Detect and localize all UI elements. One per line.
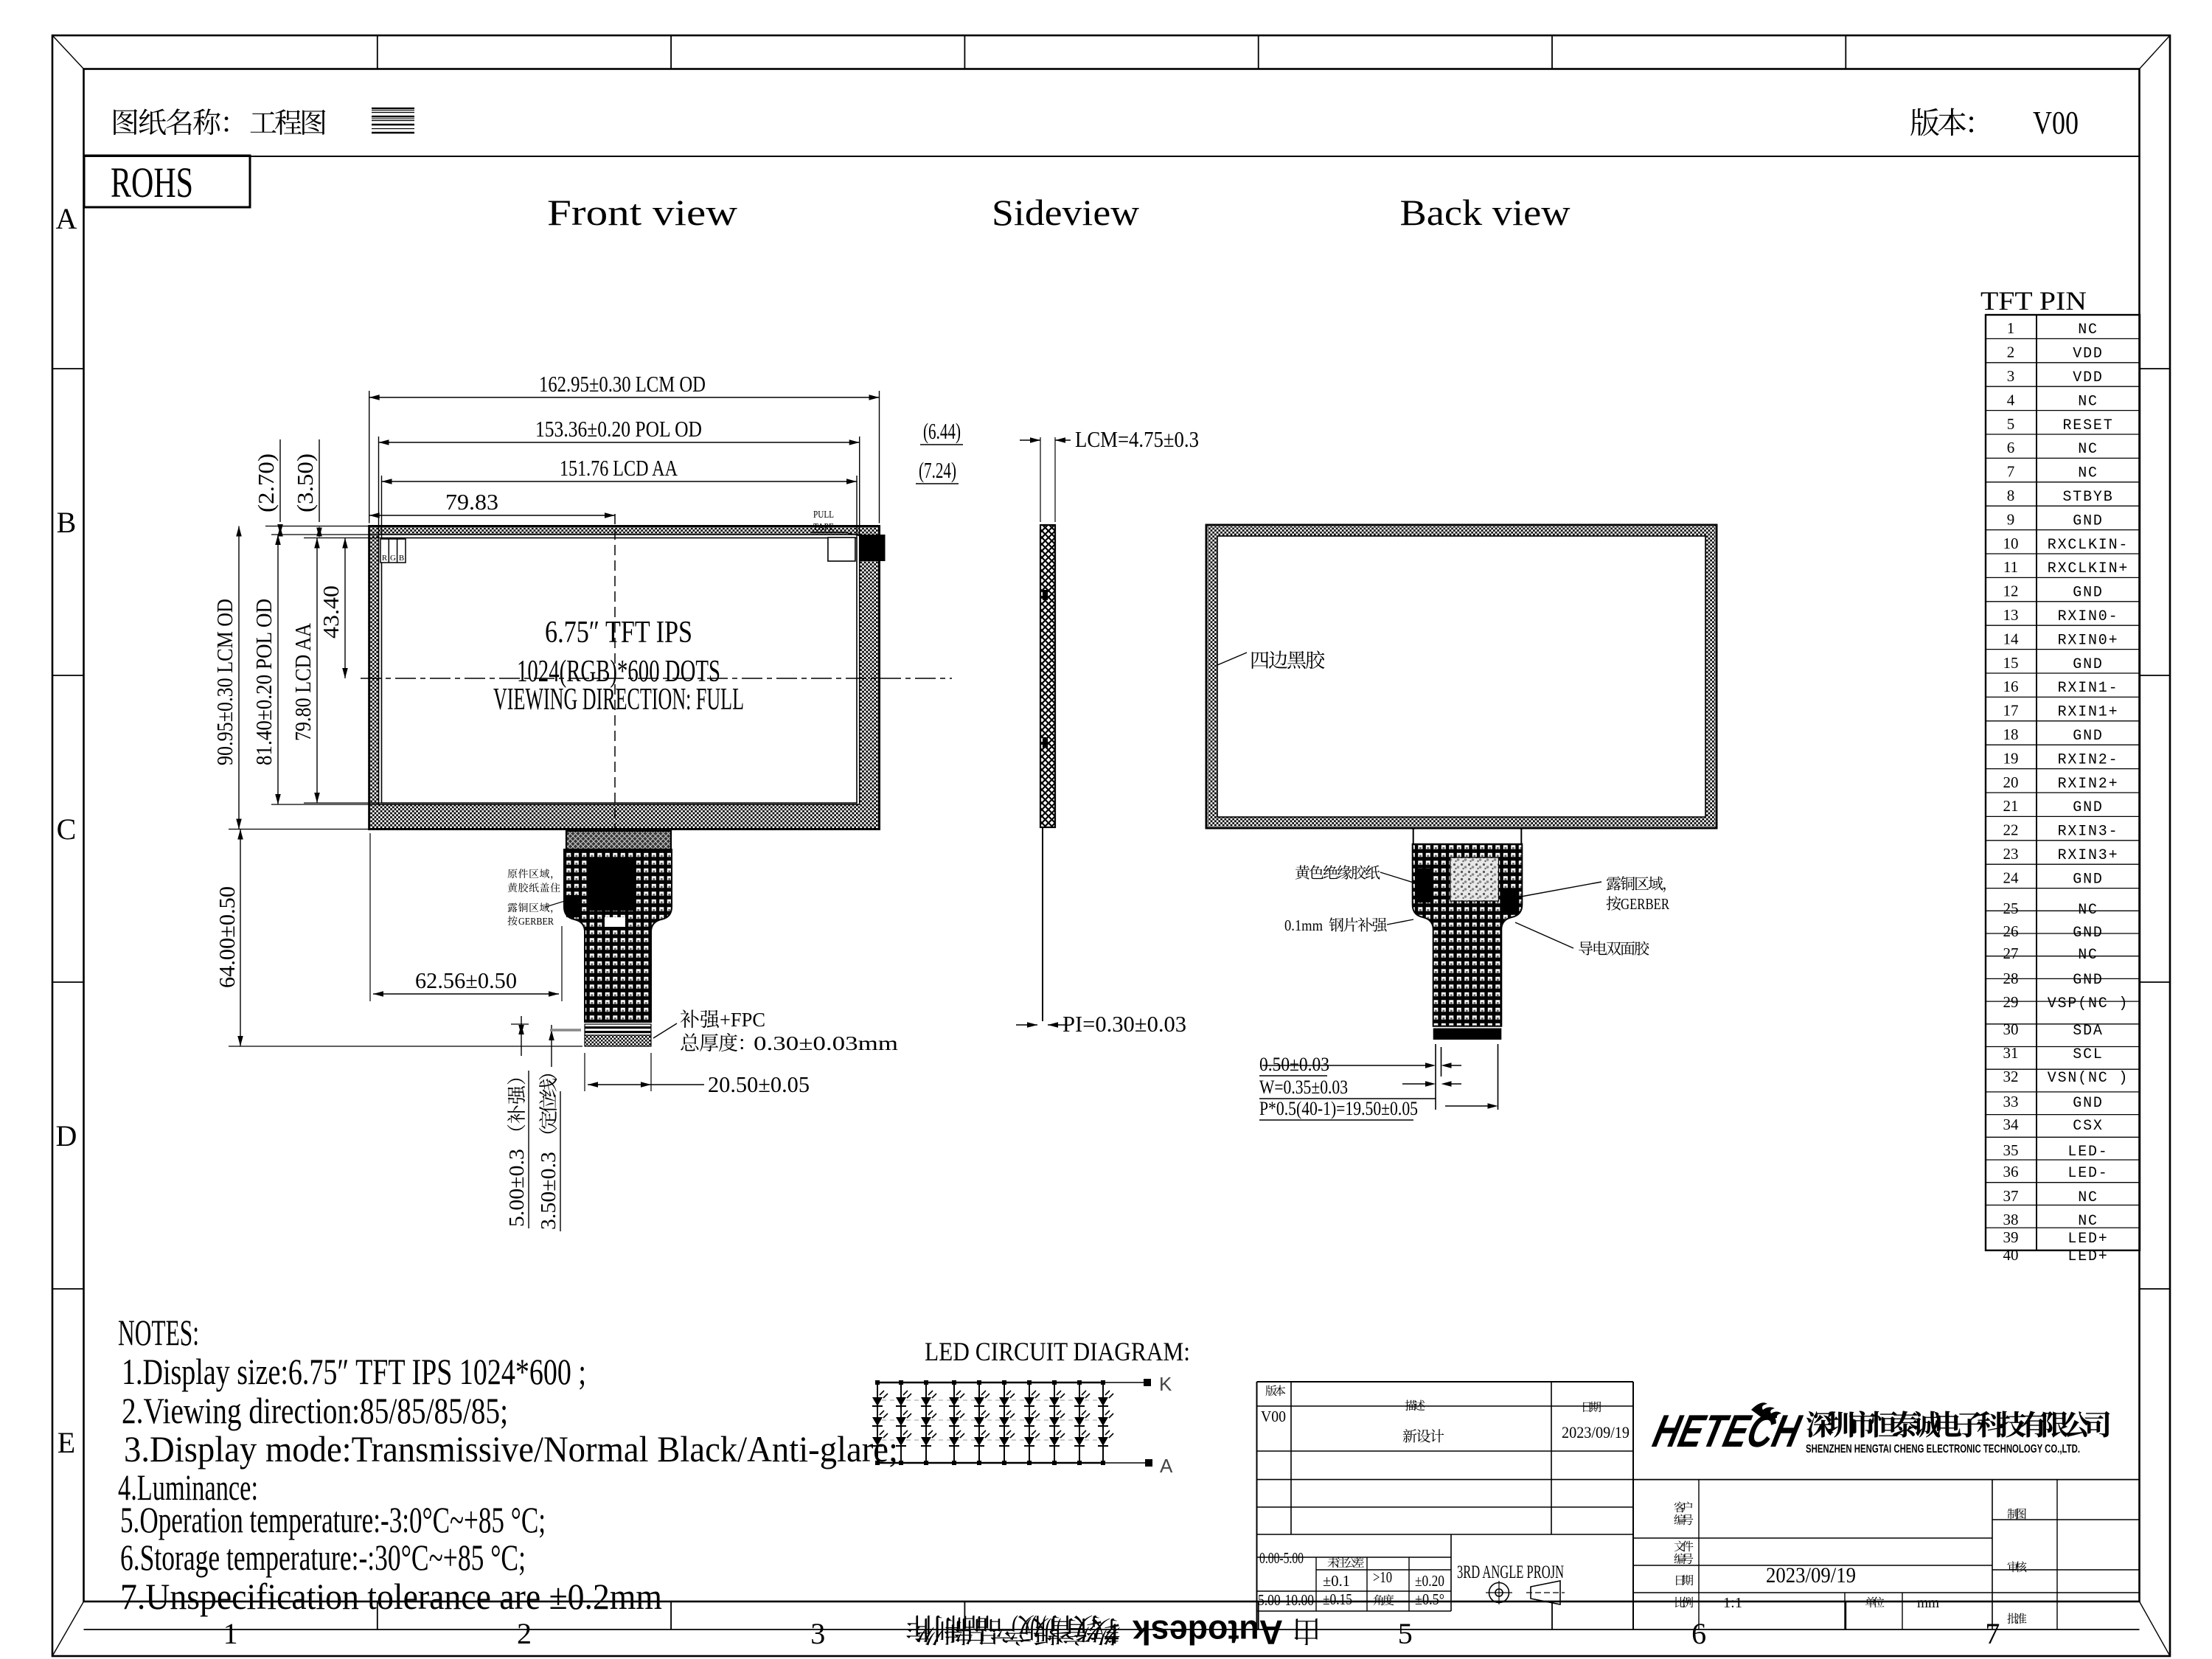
svg-text:20: 20 [2003,773,2019,791]
svg-text:GERBER: GERBER [1621,895,1669,913]
svg-text:40: 40 [2003,1246,2019,1264]
svg-text:NC: NC [2078,465,2098,482]
svg-text:RXIN2-: RXIN2- [2058,751,2119,768]
svg-text:GND: GND [2073,925,2103,942]
svg-text:1: 1 [223,1617,238,1650]
svg-text:20.50±0.05: 20.50±0.05 [708,1071,810,1097]
svg-text:0.30±0.03mm: 0.30±0.03mm [754,1032,898,1054]
svg-text:PI=0.30±0.03: PI=0.30±0.03 [1062,1011,1186,1037]
svg-text:ROHS: ROHS [111,159,193,206]
svg-text:TFT PIN: TFT PIN [1980,286,2087,316]
svg-text:4: 4 [2007,391,2015,408]
svg-text:3RD ANGLE PROJN: 3RD ANGLE PROJN [1457,1562,1564,1582]
svg-text:RXCLKIN-: RXCLKIN- [2048,537,2129,554]
svg-text:B: B [57,506,77,539]
svg-text:RXIN3-: RXIN3- [2058,824,2119,841]
svg-text:7: 7 [2007,463,2015,481]
svg-text:5: 5 [1398,1617,1413,1650]
svg-text:GND: GND [2073,871,2103,888]
svg-text:C: C [57,813,77,846]
svg-text:1: 1 [2007,319,2015,337]
svg-text:33: 33 [2003,1093,2019,1110]
svg-text:B: B [399,554,404,563]
svg-text:GND: GND [2073,656,2103,673]
svg-text:GND: GND [2073,799,2103,816]
svg-text:RXIN1+: RXIN1+ [2058,704,2119,721]
svg-text:K: K [1159,1373,1172,1395]
svg-text:2: 2 [517,1617,532,1650]
svg-text:25: 25 [2003,900,2019,917]
svg-text:43.40: 43.40 [318,585,344,639]
svg-text:LED CIRCUIT DIAGRAM:: LED CIRCUIT DIAGRAM: [925,1337,1190,1366]
svg-text:18: 18 [2003,726,2019,743]
svg-text:24: 24 [2003,869,2020,886]
svg-text:VSN(NC ): VSN(NC ) [2048,1070,2129,1087]
svg-text:±0.15: ±0.15 [1323,1590,1352,1608]
svg-text:6.Storage temperature:-:30°C~+: 6.Storage temperature:-:30°C~+85 °C; [120,1537,526,1578]
svg-text:7.Unspecification tolerance ar: 7.Unspecification tolerance are ±0.2mm [120,1576,662,1617]
svg-text:RXIN1-: RXIN1- [2058,680,2119,697]
svg-text:0.00-5.00: 0.00-5.00 [1259,1549,1304,1567]
svg-text:36: 36 [2003,1163,2019,1180]
svg-text:V00: V00 [1261,1408,1286,1425]
svg-text:15: 15 [2003,654,2019,672]
svg-text:1:1: 1:1 [1723,1595,1742,1611]
svg-text:14: 14 [2003,630,2020,647]
svg-text:RXCLKIN+: RXCLKIN+ [2048,560,2129,577]
svg-text:Sideview: Sideview [992,192,1139,233]
svg-text:2023/09/19: 2023/09/19 [1562,1423,1630,1441]
svg-text:16: 16 [2003,678,2019,695]
svg-text:STBYB: STBYB [2062,489,2113,506]
svg-text:(7.24): (7.24) [919,457,956,483]
svg-text:(3.50): (3.50) [292,453,318,512]
svg-text:81.40±0.20 POL OD: 81.40±0.20 POL OD [251,599,276,765]
svg-text:22: 22 [2003,821,2019,839]
svg-text:NC: NC [2078,441,2098,458]
svg-text:GND: GND [2073,1095,2103,1112]
svg-text:NC: NC [2078,393,2098,410]
svg-text:LED-: LED- [2067,1165,2108,1182]
svg-text:64.00±0.50: 64.00±0.50 [214,886,240,988]
svg-text:0.1mm: 0.1mm [1284,917,1323,934]
svg-text:28: 28 [2003,970,2019,987]
svg-text:NC: NC [2078,1213,2098,1230]
svg-text:LCM=4.75±0.3: LCM=4.75±0.3 [1075,426,1199,452]
svg-text:6: 6 [2007,439,2015,456]
svg-text:±0.1: ±0.1 [1323,1572,1350,1590]
svg-text:GND: GND [2073,585,2103,602]
svg-text:32: 32 [2003,1068,2019,1085]
svg-text:21: 21 [2003,797,2019,815]
svg-text:37: 37 [2003,1187,2019,1205]
svg-text:39: 39 [2003,1228,2019,1246]
svg-text:SHENZHEN HENGTAI CHENG ELECTRO: SHENZHEN HENGTAI CHENG ELECTRONIC TECHNO… [1806,1443,2080,1455]
svg-text:RXIN0+: RXIN0+ [2058,632,2119,649]
svg-text:1.Display size:6.75″ TFT IPS 1: 1.Display size:6.75″ TFT IPS 1024*600 ; [122,1351,586,1392]
svg-text:19: 19 [2003,749,2019,767]
svg-text:HETECH: HETECH [1648,1406,1806,1457]
svg-text:A: A [1160,1455,1173,1477]
svg-text:38: 38 [2003,1211,2019,1228]
svg-text:35: 35 [2003,1141,2019,1159]
svg-text:LED+: LED+ [2067,1231,2108,1248]
svg-text:+FPC: +FPC [720,1009,765,1031]
svg-text:NOTES:: NOTES: [118,1312,199,1353]
svg-text:LED-: LED- [2067,1144,2108,1161]
svg-text:NC: NC [2078,321,2098,338]
svg-text:34: 34 [2003,1116,2020,1133]
svg-text:PULL: PULL [813,509,834,521]
svg-text:5.00-10.00: 5.00-10.00 [1258,1591,1314,1609]
svg-text:TAPE: TAPE [813,522,834,533]
svg-text:G: G [390,554,396,563]
svg-text:A: A [56,202,77,235]
svg-text:Front view: Front view [547,192,737,233]
svg-text:5: 5 [2007,415,2015,433]
svg-text:12: 12 [2003,582,2019,600]
svg-text:GND: GND [2073,972,2103,989]
svg-text:V00: V00 [2033,105,2079,141]
svg-text:2: 2 [2007,344,2015,361]
svg-text:RXIN2+: RXIN2+ [2058,776,2119,793]
svg-text:62.56±0.50: 62.56±0.50 [415,967,517,993]
svg-text:(6.44): (6.44) [923,418,961,444]
svg-text:RXIN3+: RXIN3+ [2058,847,2119,864]
svg-text:RESET: RESET [2062,417,2113,434]
svg-text:30: 30 [2003,1020,2019,1038]
svg-text:17: 17 [2003,702,2019,720]
svg-text:R: R [382,554,388,563]
svg-text:162.95±0.30 LCM OD: 162.95±0.30 LCM OD [539,371,706,397]
svg-text:79.80 LCD AA: 79.80 LCD AA [290,622,316,741]
svg-text:5.Operation temperature:-3:0°C: 5.Operation temperature:-3:0°C~+85 °C; [120,1499,546,1540]
svg-text:2.Viewing direction:85/85/85/8: 2.Viewing direction:85/85/85/85; [122,1390,508,1431]
svg-text:±0.20: ±0.20 [1415,1572,1444,1590]
svg-text:0.50±0.03: 0.50±0.03 [1259,1054,1329,1075]
svg-text:NC: NC [2078,947,2098,964]
svg-text:13: 13 [2003,606,2019,624]
svg-text:26: 26 [2003,922,2019,940]
svg-text:E: E [58,1426,75,1459]
svg-text:Autodesk: Autodesk [1133,1613,1283,1652]
svg-text:6.75″ TFT IPS: 6.75″ TFT IPS [545,616,692,650]
svg-text:VIEWING DIRECTION: FULL: VIEWING DIRECTION: FULL [493,683,744,717]
svg-text:CSX: CSX [2073,1118,2103,1135]
svg-text:LED+: LED+ [2067,1248,2108,1265]
svg-text:31: 31 [2003,1044,2019,1062]
svg-text:GERBER: GERBER [518,917,554,928]
svg-text:W=0.35±0.03: W=0.35±0.03 [1259,1077,1348,1098]
svg-text:P*0.5(40-1)=19.50±0.05: P*0.5(40-1)=19.50±0.05 [1259,1098,1418,1119]
svg-text:D: D [56,1119,77,1152]
svg-text:29: 29 [2003,993,2019,1011]
svg-text:2023/09/19: 2023/09/19 [1766,1563,1856,1587]
svg-text:27: 27 [2003,945,2019,962]
svg-text:>10: >10 [1373,1568,1392,1586]
svg-text:8: 8 [2007,487,2015,504]
svg-text:VSP(NC ): VSP(NC ) [2048,995,2129,1012]
svg-text:GND: GND [2073,728,2103,745]
svg-text:79.83: 79.83 [445,489,498,515]
svg-text:SDA: SDA [2073,1023,2103,1040]
svg-text:3: 3 [810,1617,825,1650]
svg-text:SCL: SCL [2073,1046,2103,1063]
svg-text:3.50±0.3: 3.50±0.3 [538,1152,560,1230]
svg-text:RXIN0-: RXIN0- [2058,608,2119,625]
svg-text:23: 23 [2003,845,2019,863]
svg-text:GND: GND [2073,512,2103,529]
svg-text:Back view: Back view [1400,192,1571,233]
svg-text:11: 11 [2003,558,2018,576]
svg-text:3: 3 [2007,367,2015,385]
svg-text:mm: mm [1917,1595,1939,1611]
svg-text:(2.70): (2.70) [253,453,279,512]
svg-text:NC: NC [2078,902,2098,919]
svg-text:90.95±0.30 LCM OD: 90.95±0.30 LCM OD [212,599,237,765]
svg-text:VDD: VDD [2073,369,2103,386]
svg-text:153.36±0.20 POL OD: 153.36±0.20 POL OD [535,416,702,442]
svg-text:VDD: VDD [2073,346,2103,363]
svg-text:5.00±0.3: 5.00±0.3 [506,1149,529,1227]
svg-text:NC: NC [2078,1189,2098,1206]
svg-text:9: 9 [2007,510,2015,528]
svg-text:10: 10 [2003,535,2019,552]
svg-text:±0.5°: ±0.5° [1415,1590,1444,1608]
svg-text:151.76 LCD AA: 151.76 LCD AA [560,455,678,481]
svg-text:3.Display mode:Transmissive/No: 3.Display mode:Transmissive/Normal Black… [124,1428,898,1470]
